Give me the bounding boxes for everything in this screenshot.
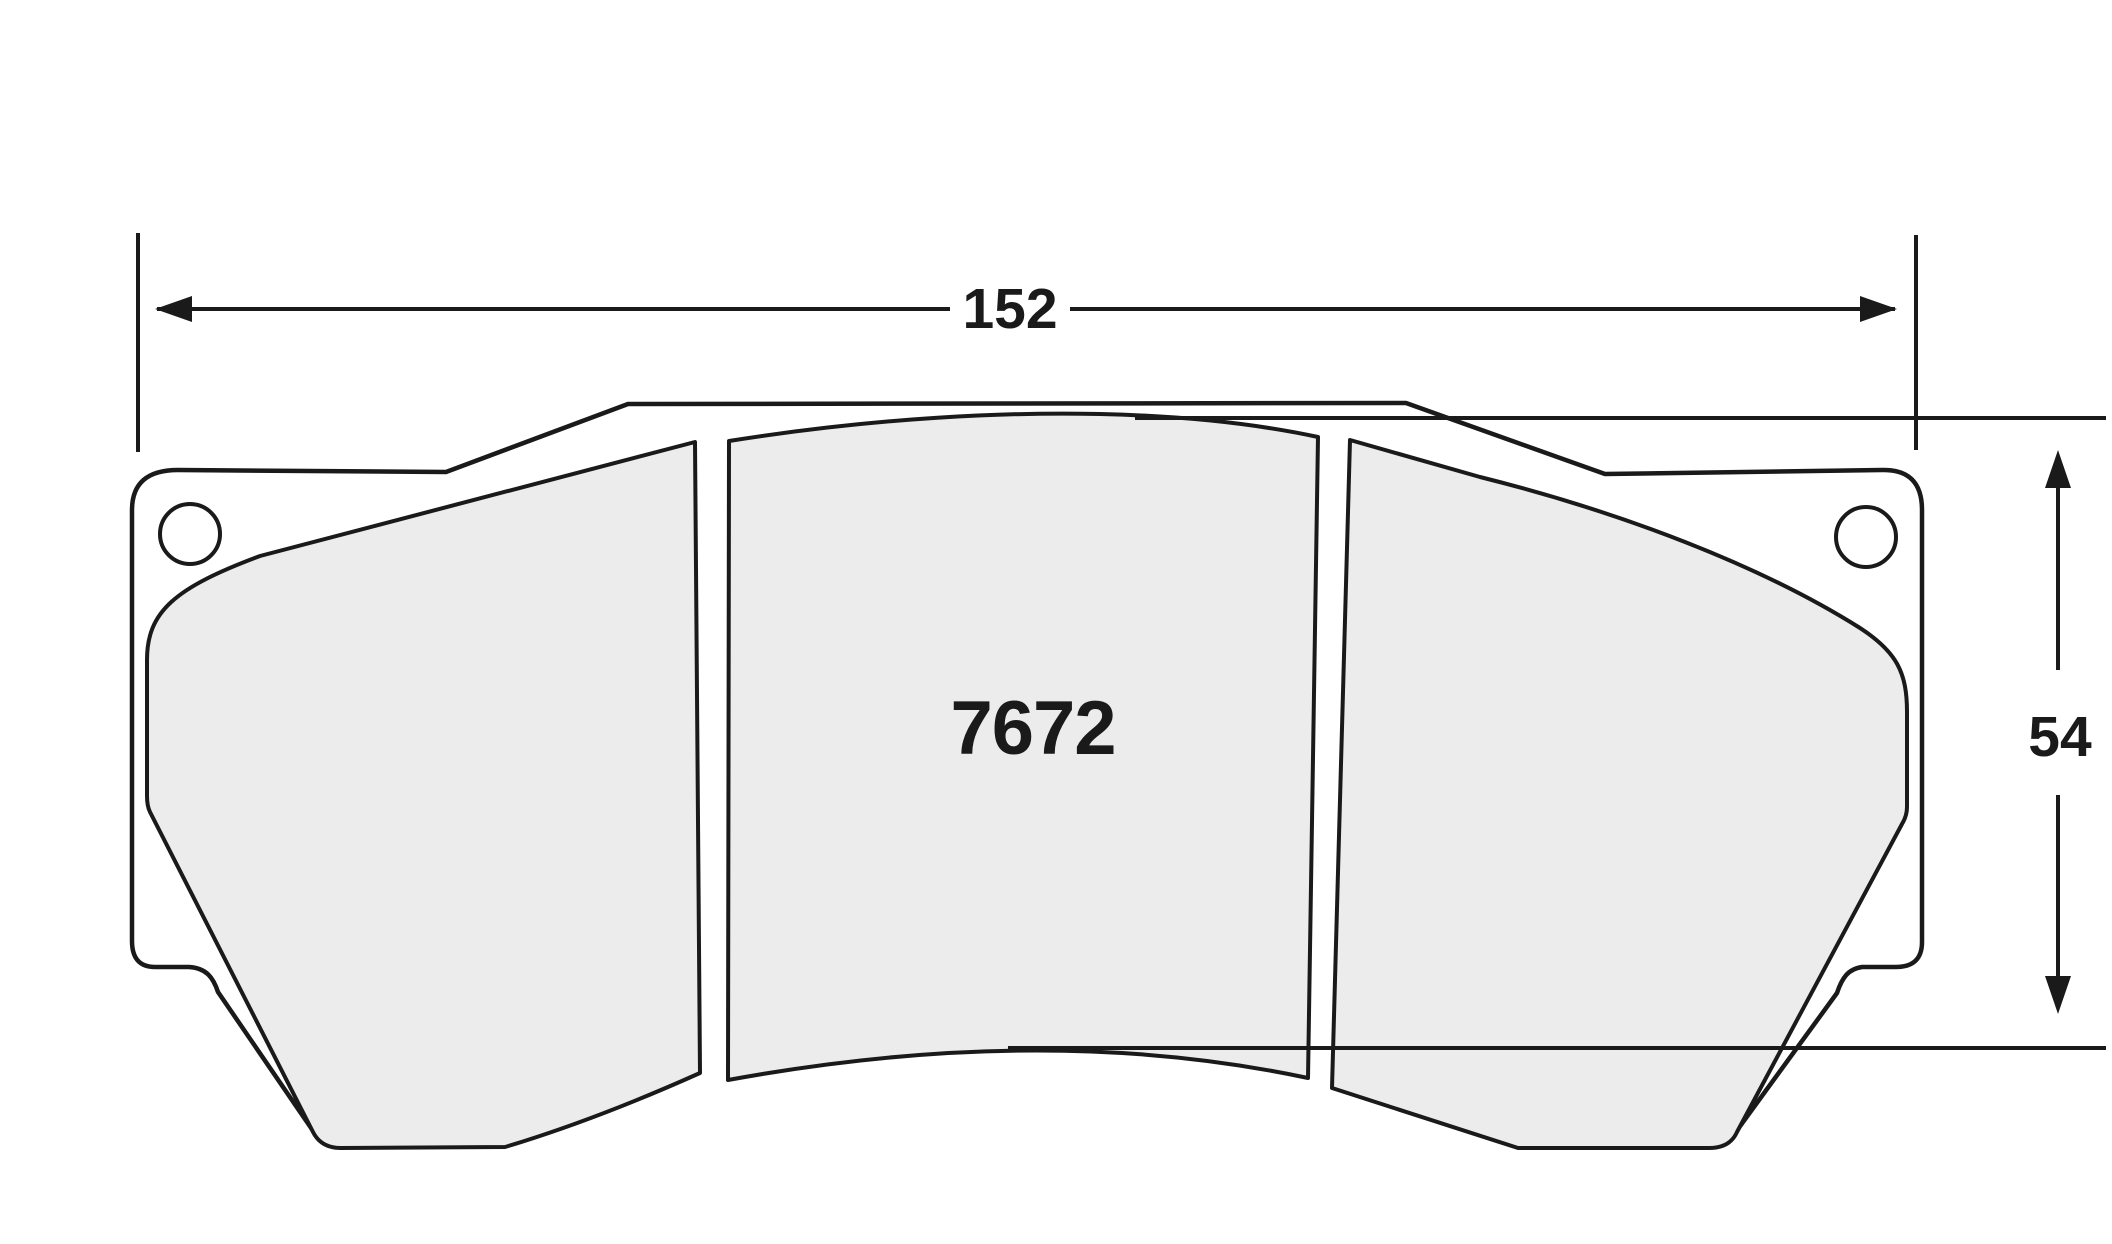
height-dimension-label: 54 (2028, 705, 2092, 769)
height-arrow-down-icon (2045, 976, 2071, 1014)
width-dimension-label: 152 (962, 277, 1057, 341)
brake-pad-drawing: 152 54 7672 (0, 0, 2112, 1244)
width-arrow-left-icon (155, 296, 192, 322)
mounting-hole-right (1836, 507, 1896, 567)
mounting-hole-left (160, 504, 220, 564)
technical-drawing-canvas: 152 54 7672 (0, 0, 2112, 1244)
part-number-label: 7672 (950, 686, 1115, 771)
height-arrow-up-icon (2045, 450, 2071, 488)
width-arrow-right-icon (1860, 296, 1897, 322)
